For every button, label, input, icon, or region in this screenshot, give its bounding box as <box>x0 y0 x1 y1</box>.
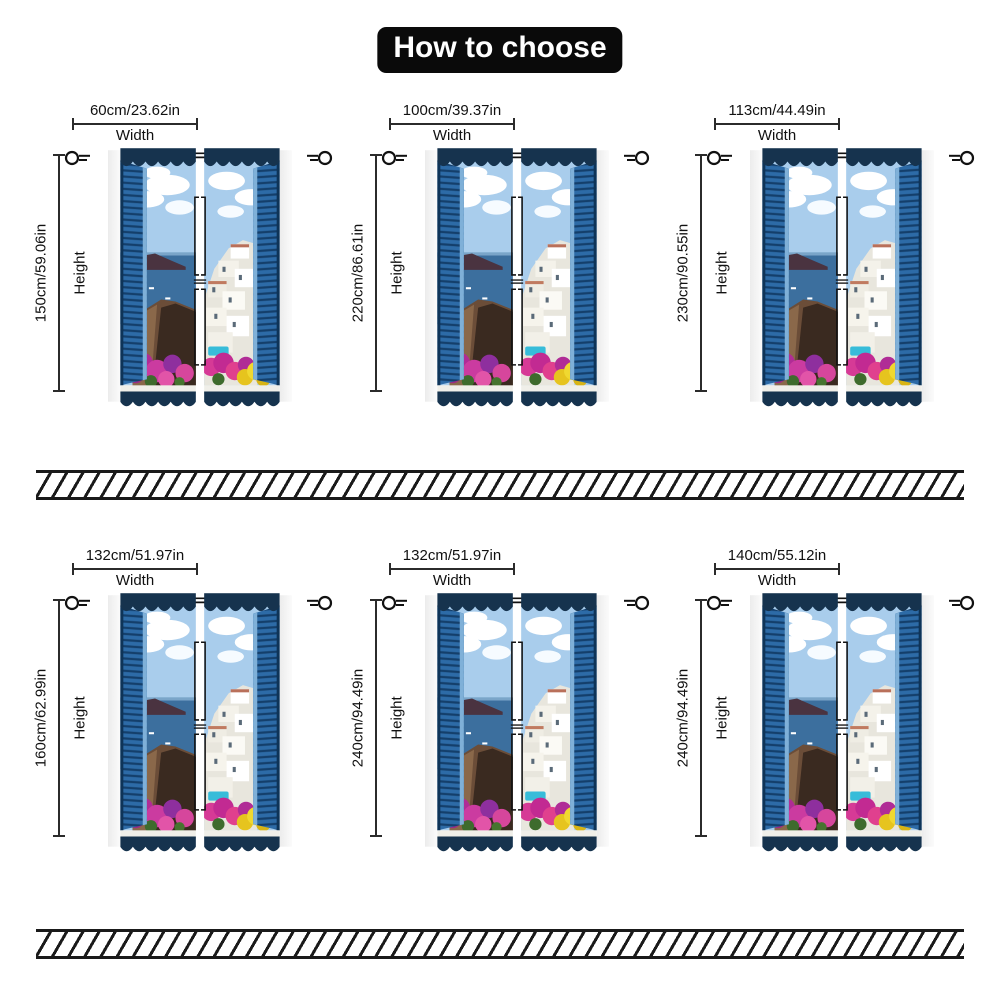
curtain-ring-icon <box>946 594 976 612</box>
width-label: Width <box>714 572 840 590</box>
width-dimension-line <box>714 123 840 125</box>
width-label: Width <box>72 572 198 590</box>
size-option-1: 60cm/23.62in Width 150cm/59.06in Height <box>8 100 341 430</box>
height-value: 150cm/59.06in <box>33 224 50 322</box>
height-dimension-line <box>58 599 60 837</box>
curtain-ring-icon <box>621 594 651 612</box>
size-option-3: 113cm/44.49in Width 230cm/90.55in Height <box>650 100 983 430</box>
width-value: 132cm/51.97in <box>72 547 198 565</box>
height-dimension-line <box>375 599 377 837</box>
width-dimension-line <box>72 123 198 125</box>
curtain-preview-image <box>425 146 609 410</box>
curtain-ring-icon <box>63 149 93 167</box>
curtain-preview-image <box>425 591 609 855</box>
curtain-preview-image <box>108 146 292 410</box>
width-dimension: 113cm/44.49in Width <box>714 102 840 145</box>
size-option-5: 132cm/51.97in Width 240cm/94.49in Height <box>325 545 658 875</box>
height-label: Height <box>714 251 731 294</box>
curtain-ring-icon <box>621 149 651 167</box>
curtain-preview-image <box>750 591 934 855</box>
height-label: Height <box>72 251 89 294</box>
size-row-1: 60cm/23.62in Width 150cm/59.06in Height … <box>0 100 1000 430</box>
width-dimension-line <box>72 568 198 570</box>
height-label: Height <box>389 696 406 739</box>
size-option-6: 140cm/55.12in Width 240cm/94.49in Height <box>650 545 983 875</box>
width-value: 132cm/51.97in <box>389 547 515 565</box>
size-option-4: 132cm/51.97in Width 160cm/62.99in Height <box>8 545 341 875</box>
width-value: 113cm/44.49in <box>714 102 840 120</box>
curtain-ring-icon <box>946 149 976 167</box>
height-dimension-line <box>700 154 702 392</box>
width-dimension: 100cm/39.37in Width <box>389 102 515 145</box>
width-label: Width <box>72 127 198 145</box>
width-dimension: 132cm/51.97in Width <box>389 547 515 590</box>
width-label: Width <box>389 572 515 590</box>
width-dimension: 140cm/55.12in Width <box>714 547 840 590</box>
curtain-ring-icon <box>380 149 410 167</box>
size-row-2: 132cm/51.97in Width 160cm/62.99in Height… <box>0 545 1000 875</box>
size-guide-page: How to choose 60cm/23.62in Width 150cm/5… <box>0 0 1000 1000</box>
height-value: 220cm/86.61in <box>350 224 367 322</box>
hatched-divider <box>36 929 964 959</box>
curtain-ring-icon <box>705 149 735 167</box>
height-value: 230cm/90.55in <box>675 224 692 322</box>
width-dimension-line <box>714 568 840 570</box>
width-label: Width <box>714 127 840 145</box>
width-dimension-line <box>389 123 515 125</box>
height-label: Height <box>714 696 731 739</box>
height-dimension-line <box>700 599 702 837</box>
size-option-2: 100cm/39.37in Width 220cm/86.61in Height <box>325 100 658 430</box>
page-title: How to choose <box>377 27 622 73</box>
height-value: 160cm/62.99in <box>33 669 50 767</box>
height-label: Height <box>389 251 406 294</box>
height-value: 240cm/94.49in <box>350 669 367 767</box>
width-value: 140cm/55.12in <box>714 547 840 565</box>
curtain-preview-image <box>108 591 292 855</box>
height-value: 240cm/94.49in <box>675 669 692 767</box>
height-label: Height <box>72 696 89 739</box>
width-label: Width <box>389 127 515 145</box>
curtain-ring-icon <box>380 594 410 612</box>
width-value: 60cm/23.62in <box>72 102 198 120</box>
width-dimension: 60cm/23.62in Width <box>72 102 198 145</box>
width-value: 100cm/39.37in <box>389 102 515 120</box>
curtain-ring-icon <box>705 594 735 612</box>
curtain-preview-image <box>750 146 934 410</box>
width-dimension: 132cm/51.97in Width <box>72 547 198 590</box>
curtain-ring-icon <box>63 594 93 612</box>
height-dimension-line <box>58 154 60 392</box>
width-dimension-line <box>389 568 515 570</box>
hatched-divider <box>36 470 964 500</box>
height-dimension-line <box>375 154 377 392</box>
